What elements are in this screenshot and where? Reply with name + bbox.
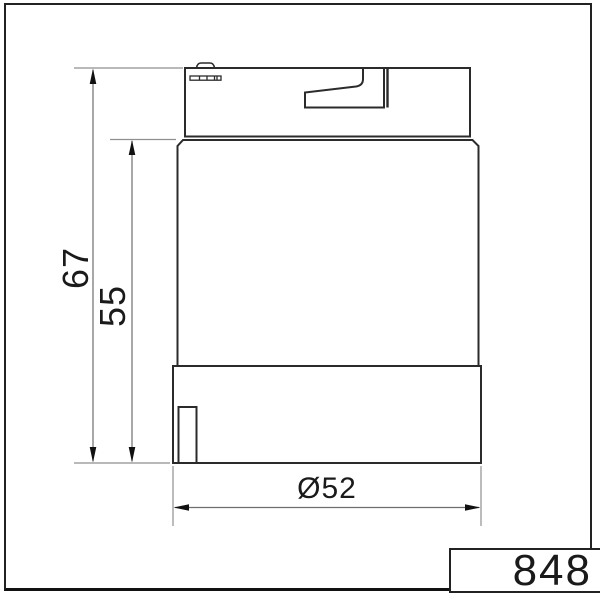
part-number: 848 xyxy=(513,549,592,593)
vent-slots xyxy=(190,76,221,80)
dim-55-arrow-bottom xyxy=(129,447,136,463)
signal-element-outline xyxy=(173,63,481,463)
lens-body-outline xyxy=(178,140,479,366)
dim-55-arrow-top xyxy=(129,140,136,155)
dim-67-arrow-top xyxy=(90,69,97,85)
base-outline xyxy=(173,366,481,463)
drawing-canvas: 67 55 Ø52 848 xyxy=(0,0,600,600)
dim-dia-arrow-left xyxy=(174,504,190,510)
dim-dia-arrow-right xyxy=(465,504,481,510)
part-number-box: 848 xyxy=(449,548,600,593)
dimension-label-overall-height: 67 xyxy=(58,247,94,289)
dim-67-arrow-bottom xyxy=(90,447,97,463)
dimension-label-diameter: Ø52 xyxy=(297,474,357,504)
cap-outline xyxy=(185,68,470,137)
base-notch xyxy=(179,407,197,463)
dimension-label-lens-height: 55 xyxy=(95,285,131,327)
device-drawing xyxy=(0,0,600,600)
